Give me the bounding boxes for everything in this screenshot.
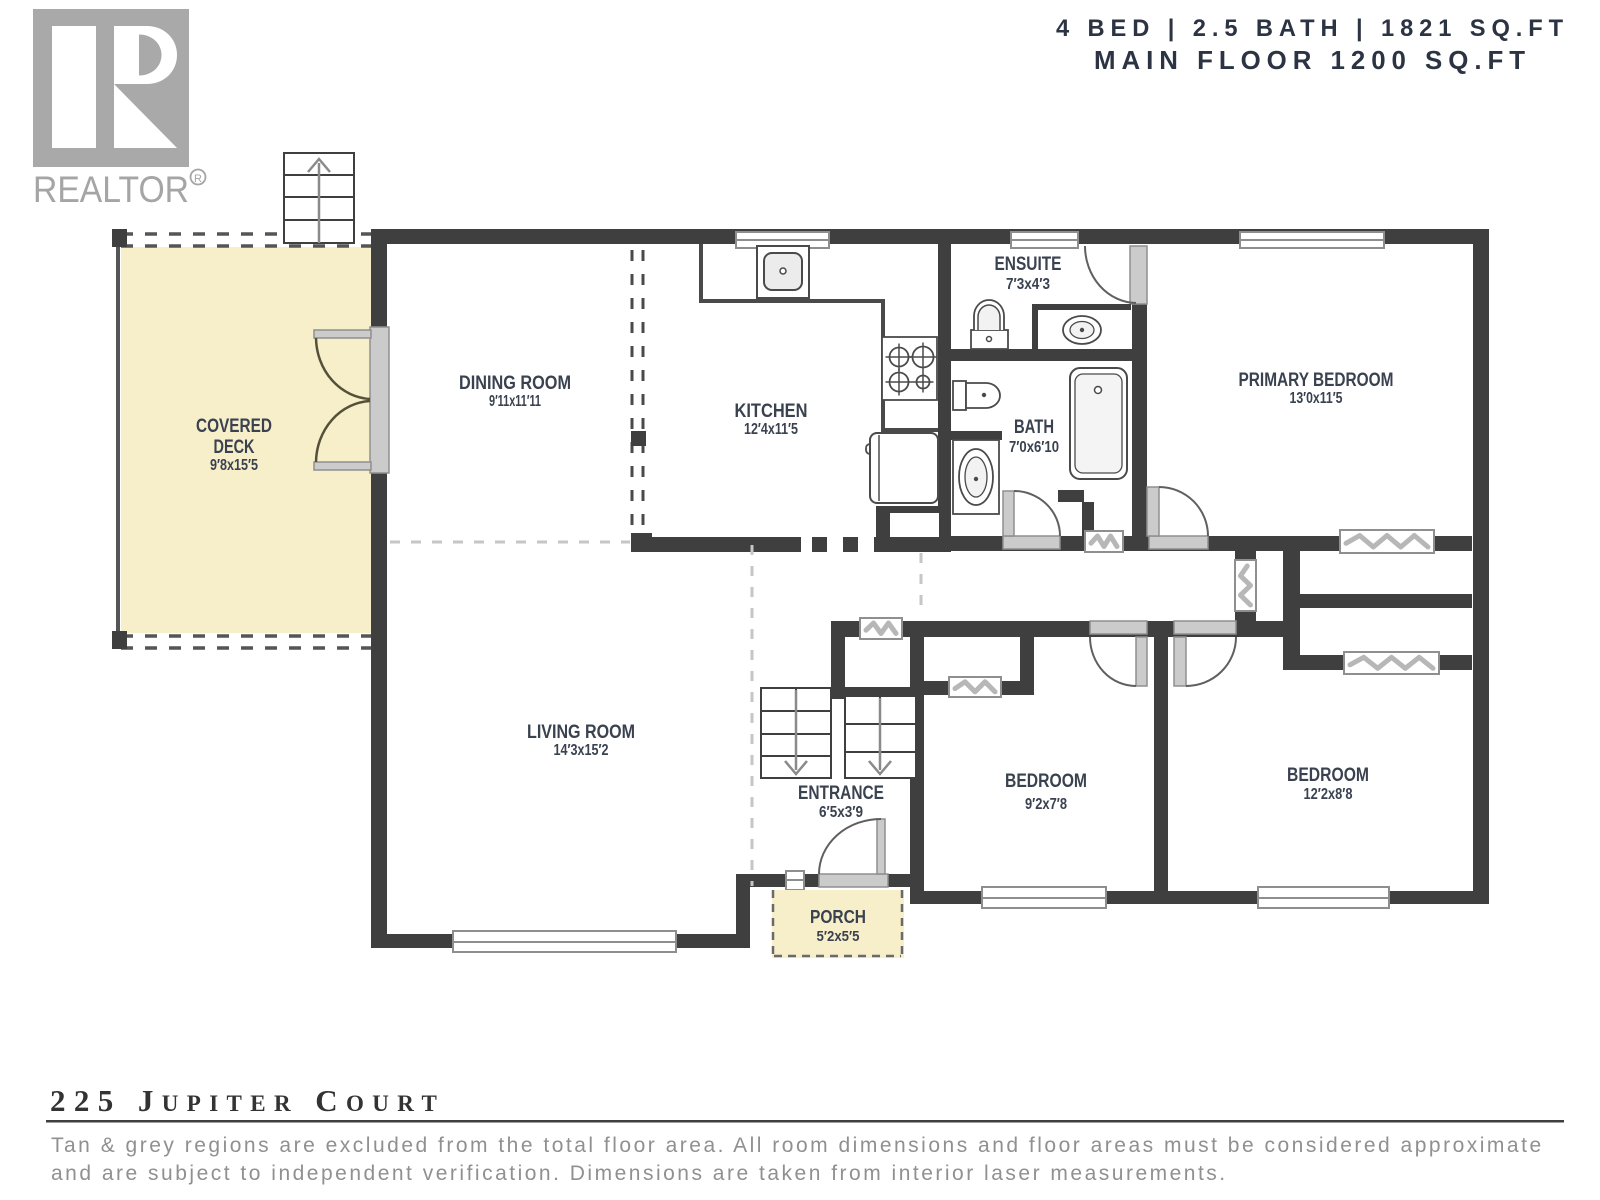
- svg-text:9′11x11′11: 9′11x11′11: [489, 393, 541, 410]
- svg-text:7′3x4′3: 7′3x4′3: [1006, 276, 1050, 293]
- svg-text:PORCH: PORCH: [810, 907, 866, 927]
- svg-text:KITCHEN: KITCHEN: [735, 401, 808, 422]
- svg-text:12′4x11′5: 12′4x11′5: [744, 421, 798, 438]
- svg-text:BEDROOM: BEDROOM: [1287, 765, 1369, 786]
- svg-text:12′2x8′8: 12′2x8′8: [1304, 786, 1353, 803]
- svg-text:BATH: BATH: [1014, 417, 1054, 438]
- svg-text:6′5x3′9: 6′5x3′9: [819, 804, 863, 821]
- svg-text:COVERED: COVERED: [196, 416, 272, 437]
- svg-text:4 BED | 2.5 BATH | 1821 SQ.FT: 4 BED | 2.5 BATH | 1821 SQ.FT: [1056, 15, 1569, 42]
- svg-text:ENTRANCE: ENTRANCE: [798, 783, 884, 804]
- svg-text:DECK: DECK: [214, 437, 255, 458]
- svg-text:REALTOR: REALTOR: [33, 168, 189, 210]
- svg-text:and are subject to independent: and are subject to independent verificat…: [51, 1162, 1228, 1185]
- svg-text:LIVING ROOM: LIVING ROOM: [527, 722, 635, 743]
- svg-text:5′2x5′5: 5′2x5′5: [817, 928, 860, 945]
- svg-text:13′0x11′5: 13′0x11′5: [1290, 390, 1343, 407]
- svg-text:BEDROOM: BEDROOM: [1005, 771, 1087, 792]
- svg-text:PRIMARY BEDROOM: PRIMARY BEDROOM: [1239, 370, 1394, 391]
- svg-text:14′3x15′2: 14′3x15′2: [554, 742, 609, 759]
- svg-text:MAIN FLOOR 1200 SQ.FT: MAIN FLOOR 1200 SQ.FT: [1094, 45, 1531, 75]
- svg-text:7′0x6′10: 7′0x6′10: [1009, 439, 1059, 456]
- svg-text:9′8x15′5: 9′8x15′5: [210, 457, 258, 474]
- svg-text:DINING ROOM: DINING ROOM: [459, 373, 571, 394]
- svg-text:Tan & grey regions are exclude: Tan & grey regions are excluded from the…: [51, 1134, 1544, 1157]
- svg-text:R: R: [194, 173, 202, 185]
- svg-text:9′2x7′8: 9′2x7′8: [1025, 796, 1067, 813]
- svg-text:ENSUITE: ENSUITE: [995, 254, 1062, 275]
